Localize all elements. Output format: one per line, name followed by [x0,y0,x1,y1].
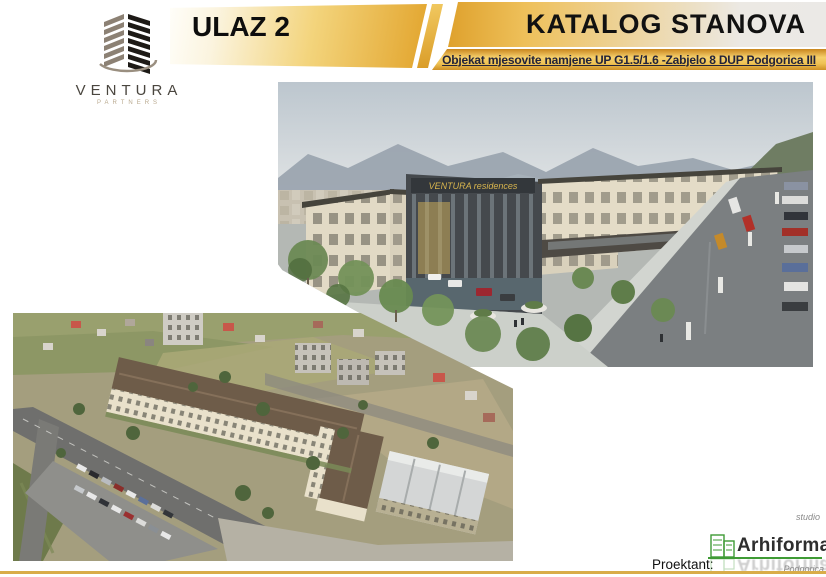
arhiforma-logo: studio Arhiforma Arhiforma Podgorica [706,512,824,576]
building-sign-text: VENTURA residences [429,181,518,191]
subtitle-banner: Objekat mjesovite namjene UP G1.5/1.6 -Z… [432,49,826,70]
page-title: KATALOG STANOVA [526,9,806,40]
brand-tagline: PARTNERS [64,100,194,106]
entrance-label: ULAZ 2 [192,11,290,43]
studio-name: Arhiforma [737,535,826,557]
subtitle-text: Objekat mjesovite namjene UP G1.5/1.6 -Z… [442,53,816,67]
katalog-banner: KATALOG STANOVA [440,2,826,47]
proektant-label: Proektant: [652,557,714,572]
bottom-gold-rule [0,571,826,574]
arhiforma-building-icon [709,532,737,576]
brand-name: VENTURA [64,82,194,99]
building-icon [94,8,164,80]
ulaz-banner: ULAZ 2 [170,4,427,68]
corner-tower: VENTURA residences [406,174,542,314]
studio-prefix-label: studio [796,512,820,522]
